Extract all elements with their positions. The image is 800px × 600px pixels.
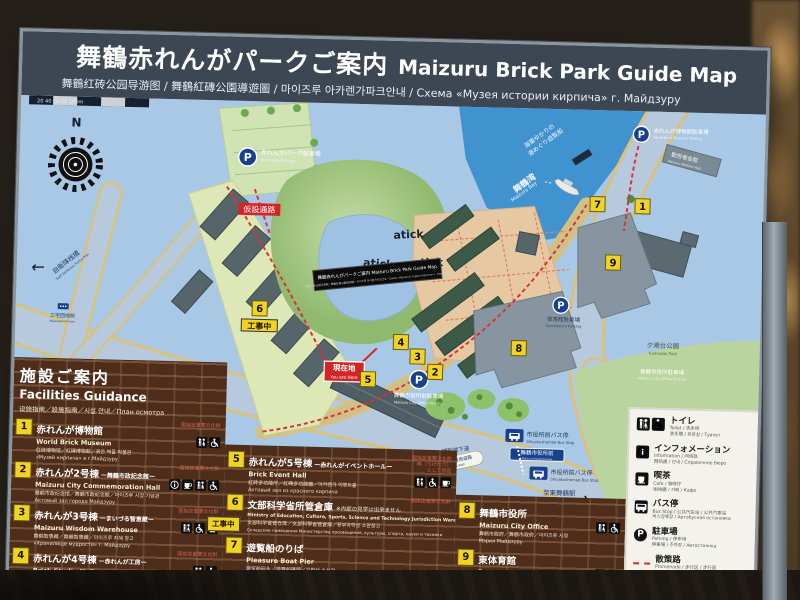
svg-text:P: P [638,130,646,141]
legend-bus-stop: バス停Bus Stop / 公共汽车站 / 公共汽車站버스정류장 / Автоб… [634,499,751,523]
wheelchair-icon [652,418,665,431]
facility-name-jp: 文部科学省所管倉庫 [247,500,333,513]
facility-name-jp: 赤れんが5号棟 [249,457,313,470]
facility-name-suffix: ー赤れんがイベントホールー [314,462,392,471]
legend-toilet: トイレToilet / 洗手间洗手間 / 화장실 / Туалет [636,416,753,440]
cafe-icon [635,473,648,486]
svg-text:P: P [557,301,565,312]
svg-text:Maizurushiyakushomae: Maizurushiyakushomae [522,456,553,461]
parking-icon: P [634,528,647,541]
promenade-dash-icon [633,562,650,564]
facility-number: 4 [13,548,28,563]
svg-text:仮設通路: 仮設通路 [243,204,275,215]
facility-number: 9 [458,550,473,565]
facilities-band-left: 施設ご案内 Facilities Guidance 设施指南／設施指南／시설 안… [9,357,228,584]
construction-tag-map: 工事中 [241,319,277,332]
legend-parking: P 駐車場Parking / 停车场停車場 / 주차장 / Автостоянк… [634,527,751,551]
small-shed [516,232,540,256]
wheelchair-icon [209,437,220,448]
svg-text:Miyakedanchimae: Miyakedanchimae [50,319,76,324]
facility-name-jp: 遊覧船のりば [246,543,303,555]
svg-text:atick: atick [393,228,425,242]
guide-sign-panel: 舞鶴赤れんがパークご案内 Maizuru Brick Park Guide Ma… [5,28,770,600]
wheelchair-icon [427,477,438,488]
facility-entry-2: 2 赤れんが2号棟ー舞鶴市政記念館ー Maizuru City Commemor… [15,460,221,506]
scale-labels: 20 40 60 80 100m [37,98,83,105]
wheelchair-icon [609,523,620,534]
facility-number: 5 [229,452,244,467]
city-office-parking2-label: 舞鶴市役所駐車場 Maizuru City Office Parking [638,367,687,381]
svg-text:2: 2 [431,367,438,378]
designation-label: 国指定重要文化財 [179,465,219,472]
legend-cafe: 喫茶Cafe / 咖啡厅咖啡廳 / 카페 / Кафе [635,472,752,496]
svg-text:4: 4 [397,338,404,349]
toilet-icon [195,480,206,491]
facility-name-jp: 東体育館 [478,555,516,567]
facility-note: ※内部の見学は出来ません [336,506,401,514]
facility-name-jp: 赤れんが4号棟 [33,554,97,567]
wheelchair-icon [194,523,205,534]
svg-text:7: 7 [594,200,601,211]
svg-text:9: 9 [609,258,616,269]
facility-name-jp: 赤れんが2号棟 [35,468,99,481]
facility-name-suffix: ー舞鶴市政記念館ー [101,472,155,480]
toilet-icon [596,522,607,533]
construction-tag-list: 工事中 [207,516,240,532]
compass-north-label: N [71,115,81,129]
toilet-icon [181,522,192,533]
temporary-passage-tag: 仮設通路 [238,203,280,216]
svg-text:6: 6 [256,304,263,315]
svg-text:Yushiodai Park: Yushiodai Park [647,351,678,357]
svg-text:You are Here: You are Here [329,374,358,381]
designation-label: 国指定重要文化財棟（つけたり）として指定 [411,455,451,474]
svg-text:P: P [243,151,251,164]
facility-entry-5: 5 赤れんが5号棟ー赤れんがイベントホールー Brick Event Hall … [228,450,453,497]
info-icon [169,479,180,490]
cafe-icon [440,477,451,488]
svg-text:P: P [415,373,423,386]
info-icon [636,445,649,458]
facility-entry-1: 1 赤れんが博物館 World Brick Museum 红砖博物馆／紅磚博物館… [16,417,222,463]
svg-text:8: 8 [515,344,522,355]
facility-entry-8: 8 舞鶴市役所 Maizuru City Office 舞鹤市政府／舞鶴市政府／… [459,501,622,546]
svg-text:5: 5 [364,375,371,386]
facility-number: 1 [16,419,31,434]
facility-entry-3: 3 赤れんが3号棟ーまいづる智恵蔵ー Maizuru Wisdom Wareho… [13,503,219,549]
designation-label: 国指定重要文化財 [411,498,451,505]
bus-icon [635,500,648,513]
station-plate: 舞鶴市役所前 Maizurushiyakushomae [510,448,564,461]
svg-text:1: 1 [639,202,646,213]
facility-name-jp: 赤れんが3号棟 [34,511,98,524]
yushiodai-park-label: 夕潮台公園 Yushiodai Park [646,341,679,357]
brick-park-parking-label-jp: 赤れんがパーク駐車場 [261,148,321,158]
facilities-band-middle: 5 赤れんが5号棟ー赤れんがイベントホールー Brick Event Hall … [222,445,458,591]
facility-entry-6: 6 文部科学省所管倉庫※内部の見学は出来ません Ministry of Educ… [227,493,452,540]
facility-number: 3 [14,505,29,520]
facility-name-suffix: ー赤れんが工房ー [99,558,147,566]
toilet-icon [414,476,425,487]
sign-support-pole [762,222,787,600]
designation-label: 国指定重要文化財 [178,508,218,515]
photo-of-guide-sign: 舞鶴赤れんがパークご案内 Maizuru Brick Park Guide Ma… [0,0,800,600]
svg-text:工事中: 工事中 [247,321,271,332]
designation-label: 国指定重要文化財 [177,551,217,558]
facility-name-suffix: ーまいづる智恵蔵ー [100,515,154,523]
cafe-icon [182,479,193,490]
facilities-header: 施設ご案内 Facilities Guidance 设施指南／設施指南／시설 안… [13,357,227,421]
svg-text:夕潮台公園: 夕潮台公園 [647,341,680,351]
legend-information: インフォメーションInformation / 问询处問訊處 / 안내 / Спр… [636,444,753,468]
facility-number: 6 [227,495,242,510]
designation-label: 国指定重要文化財 [181,422,221,429]
toilet-icon [637,417,650,430]
facility-name-jp: 舞鶴市役所 [479,508,527,520]
facility-number: 7 [226,538,241,553]
brick-park-parking-label-en: Brick Park Parking [261,157,296,163]
facility-name-jp: 赤れんが博物館 [36,425,103,438]
svg-text:現在地: 現在地 [333,362,356,373]
ground-shadow [0,570,800,600]
toilet-icon [196,437,207,448]
facility-number: 2 [15,462,30,477]
facility-number: 8 [459,503,474,518]
wheelchair-icon [208,480,219,491]
svg-text:3: 3 [414,352,421,363]
